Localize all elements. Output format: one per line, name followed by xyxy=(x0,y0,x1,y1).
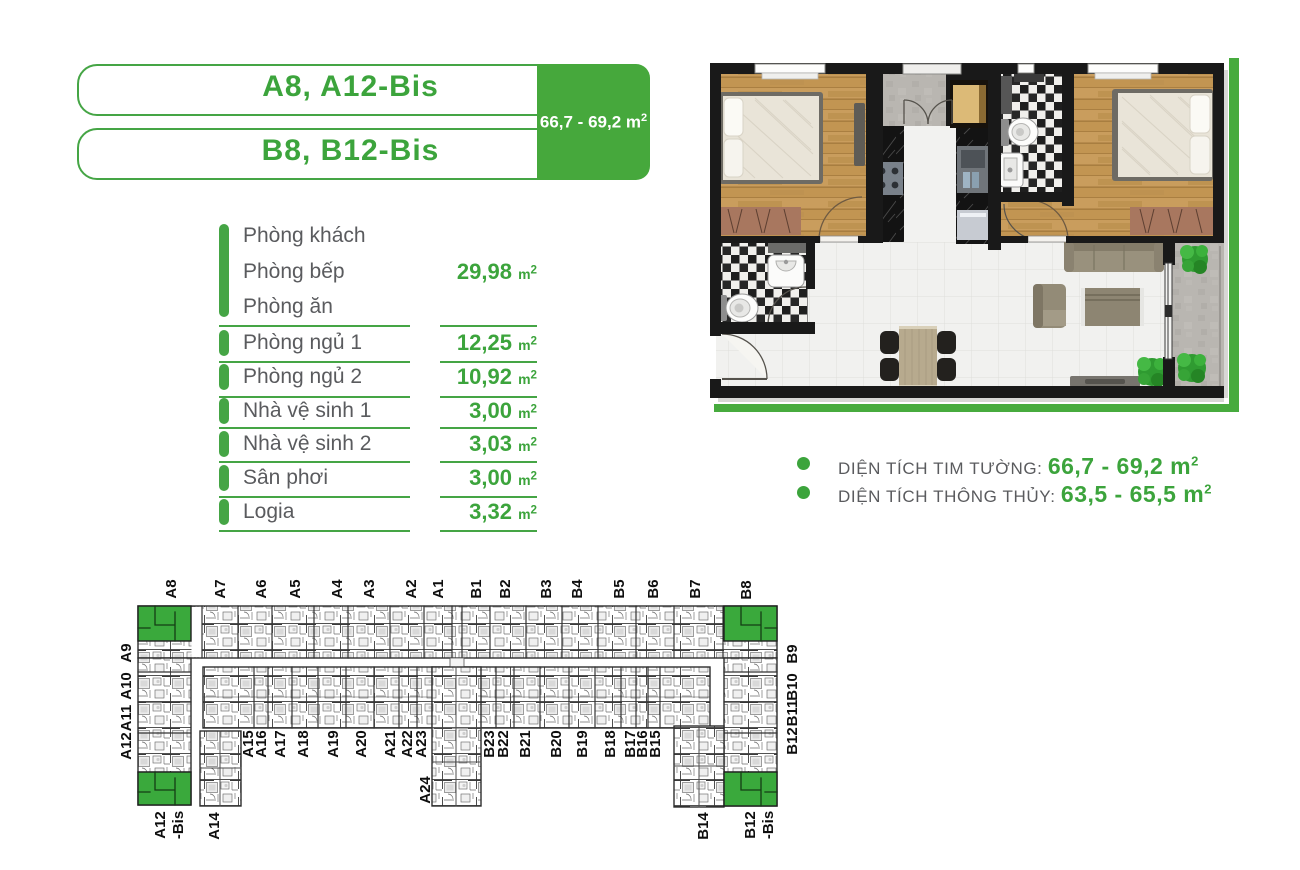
svg-text:A10: A10 xyxy=(118,672,135,700)
svg-text:A16: A16 xyxy=(253,730,270,758)
svg-text:B21: B21 xyxy=(517,730,534,758)
svg-text:B4: B4 xyxy=(569,579,586,599)
svg-text:A14: A14 xyxy=(206,812,223,840)
svg-text:A6: A6 xyxy=(253,579,270,598)
svg-text:A24: A24 xyxy=(417,776,434,804)
svg-text:A20: A20 xyxy=(353,730,370,758)
svg-text:A23: A23 xyxy=(413,730,430,758)
svg-text:-Bis: -Bis xyxy=(170,811,187,839)
svg-text:A4: A4 xyxy=(329,579,346,599)
svg-text:A9: A9 xyxy=(118,643,135,662)
svg-text:B22: B22 xyxy=(495,730,512,758)
svg-text:B7: B7 xyxy=(687,579,704,598)
svg-text:B18: B18 xyxy=(602,730,619,758)
svg-text:B12: B12 xyxy=(742,811,759,839)
svg-text:A11: A11 xyxy=(118,705,135,732)
svg-text:B3: B3 xyxy=(538,579,555,598)
svg-text:B9: B9 xyxy=(784,644,801,663)
svg-text:-Bis: -Bis xyxy=(760,811,777,839)
svg-text:A3: A3 xyxy=(361,579,378,598)
svg-text:B6: B6 xyxy=(645,579,662,598)
svg-text:A5: A5 xyxy=(287,579,304,598)
svg-text:B12: B12 xyxy=(784,727,801,755)
svg-text:B19: B19 xyxy=(574,730,591,758)
svg-text:B1: B1 xyxy=(468,579,485,598)
svg-text:B14: B14 xyxy=(695,812,712,840)
svg-text:B5: B5 xyxy=(611,579,628,598)
svg-text:B15: B15 xyxy=(647,730,664,758)
svg-text:B2: B2 xyxy=(497,579,514,598)
svg-text:A19: A19 xyxy=(325,730,342,758)
svg-text:A12: A12 xyxy=(118,732,135,760)
svg-text:A18: A18 xyxy=(295,730,312,758)
svg-text:B10: B10 xyxy=(784,673,801,701)
svg-text:B20: B20 xyxy=(548,730,565,758)
svg-text:B8: B8 xyxy=(738,580,755,599)
svg-text:A8: A8 xyxy=(163,579,180,598)
svg-text:B11: B11 xyxy=(784,700,801,727)
svg-text:A1: A1 xyxy=(430,579,447,598)
svg-text:A21: A21 xyxy=(382,730,399,758)
svg-text:A2: A2 xyxy=(403,579,420,598)
svg-text:A12: A12 xyxy=(152,811,169,839)
svg-text:A17: A17 xyxy=(272,730,289,758)
svg-text:A7: A7 xyxy=(212,579,229,598)
